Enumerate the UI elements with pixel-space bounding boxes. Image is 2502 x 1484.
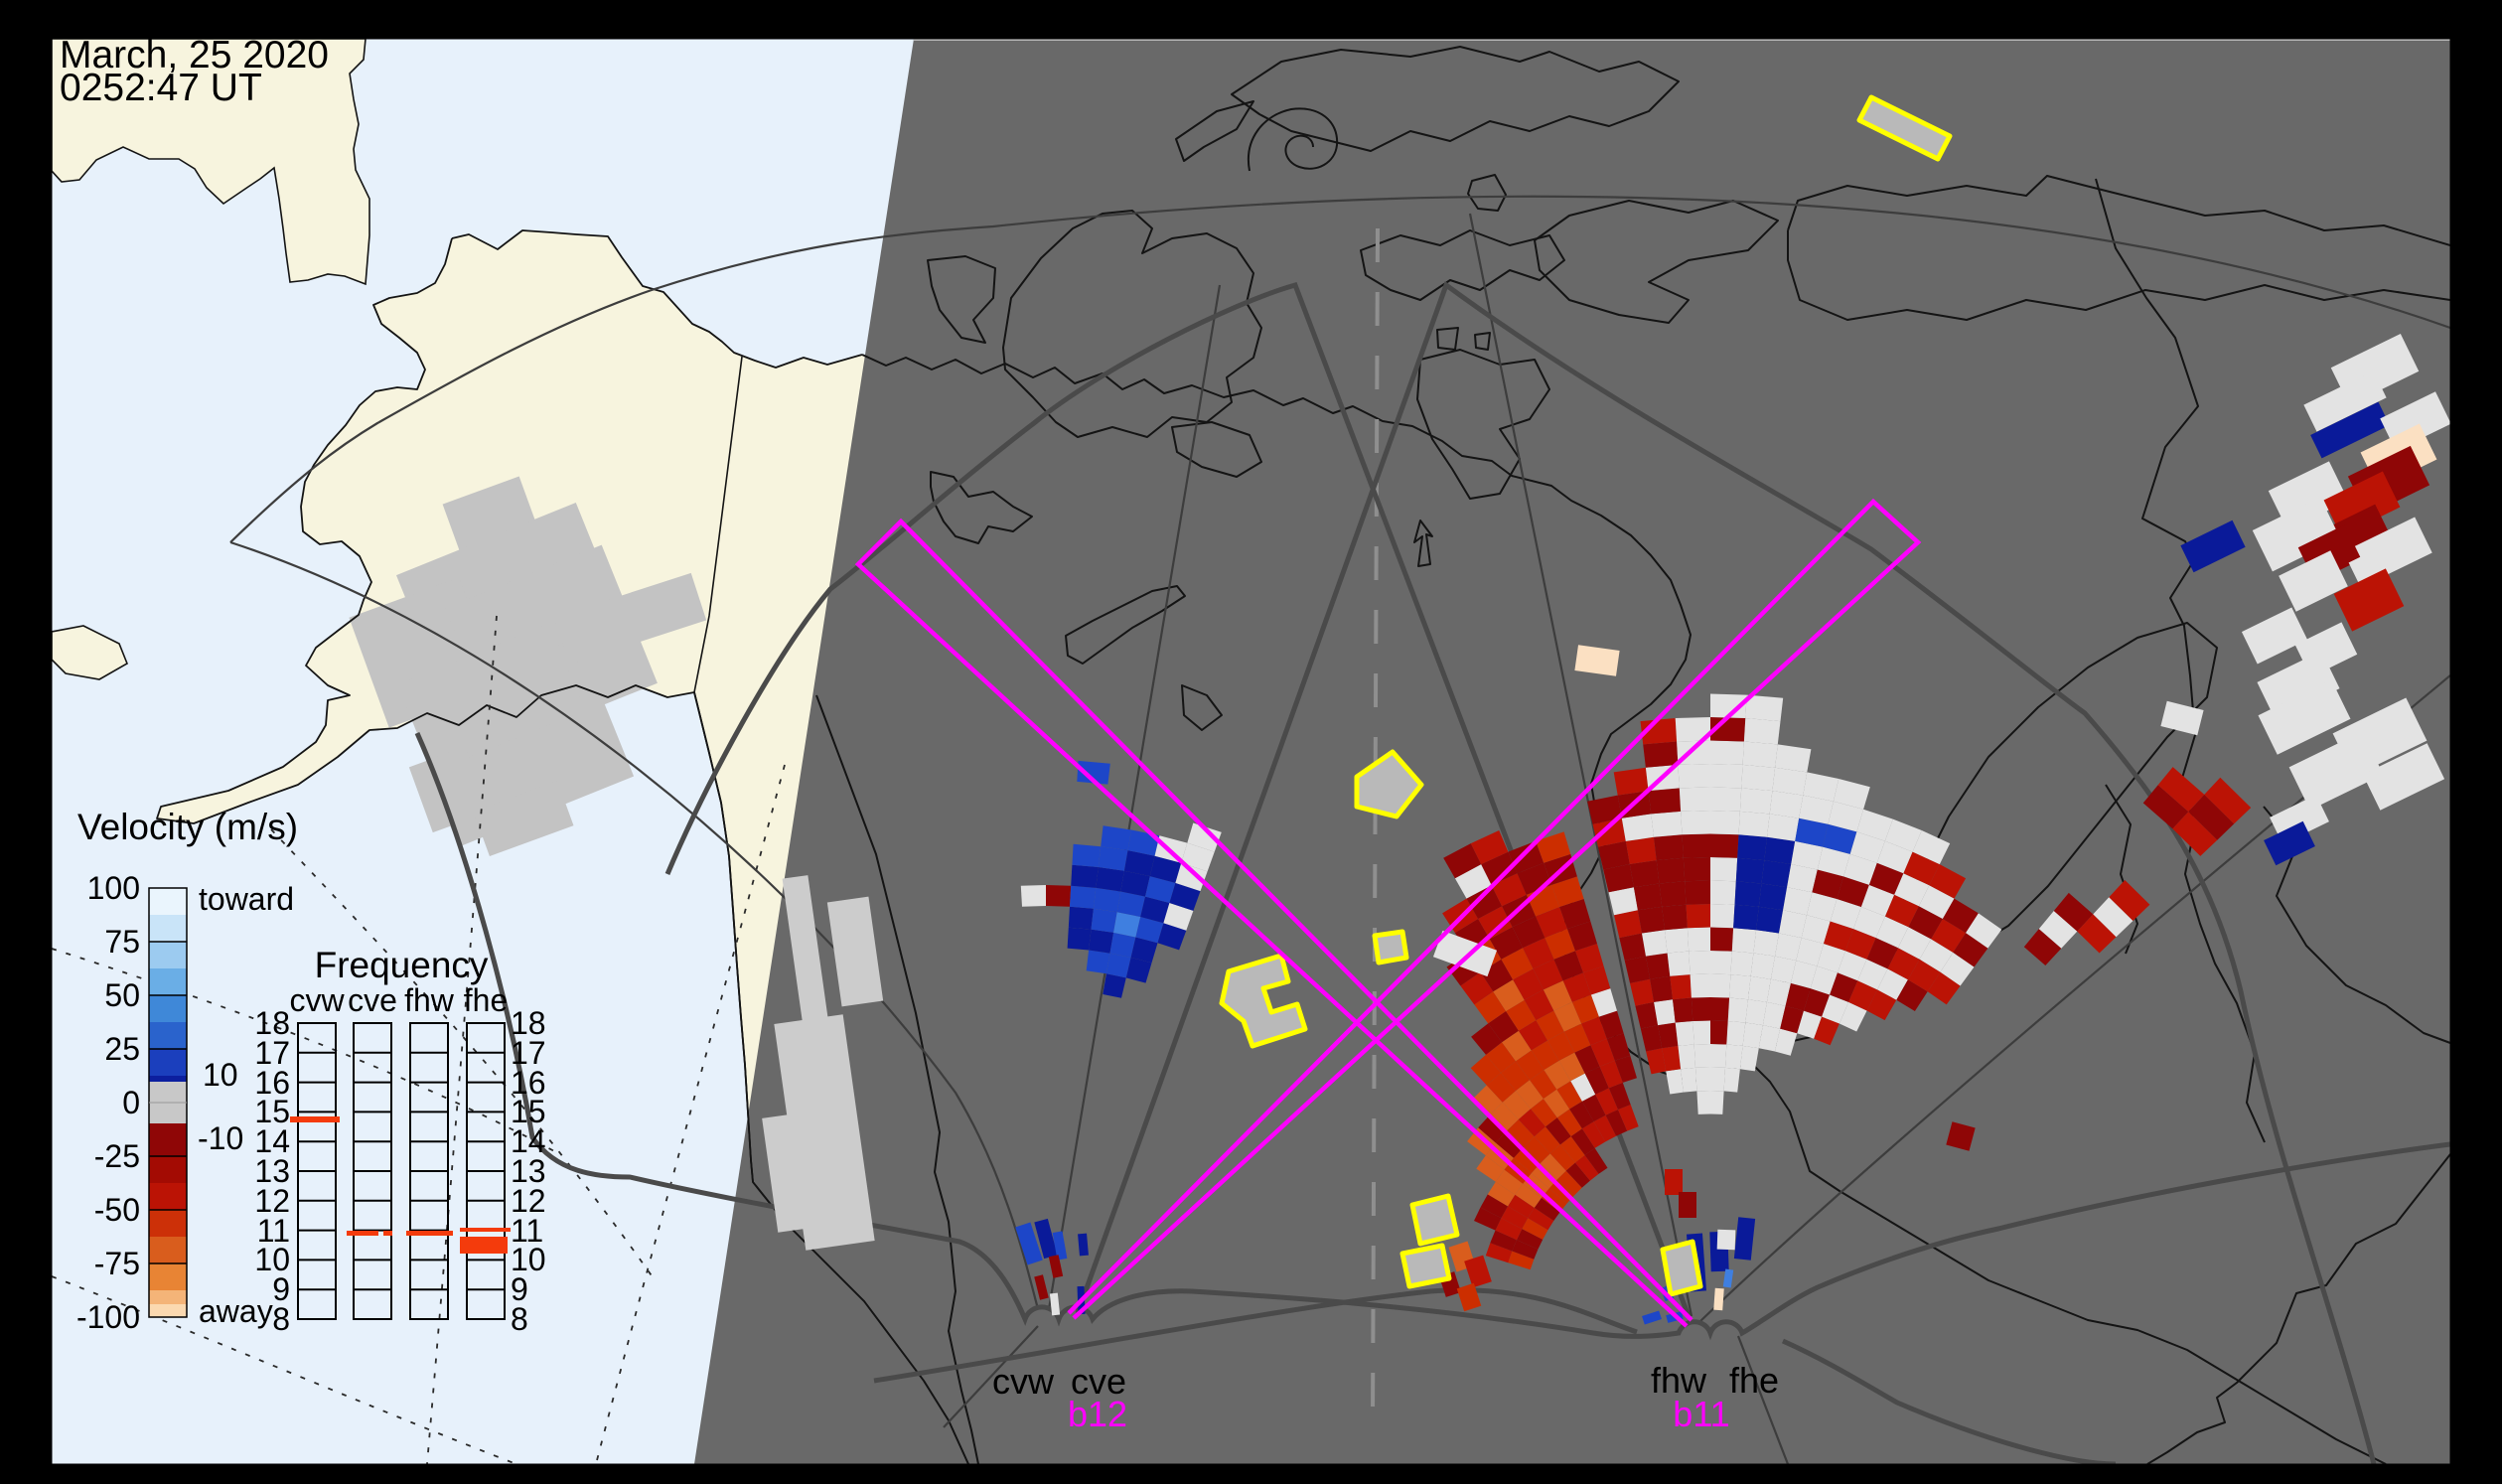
svg-text:-50: -50 [94,1192,140,1228]
svg-text:50: 50 [104,977,140,1013]
svg-text:0252:47 UT: 0252:47 UT [60,67,262,109]
svg-text:Frequency: Frequency [315,945,489,985]
svg-text:0: 0 [122,1085,140,1120]
svg-text:-10: -10 [198,1120,243,1156]
svg-text:b12: b12 [1068,1394,1127,1434]
svg-text:Velocity (m/s): Velocity (m/s) [77,807,298,847]
svg-text:cve: cve [348,982,397,1018]
svg-text:away: away [199,1293,273,1329]
svg-text:toward: toward [199,881,294,917]
svg-text:75: 75 [104,924,140,960]
svg-text:-75: -75 [94,1246,140,1281]
svg-text:b11: b11 [1673,1394,1729,1434]
svg-text:100: 100 [87,870,140,906]
svg-text:cvw: cvw [992,1361,1055,1402]
svg-text:10: 10 [203,1057,238,1093]
svg-text:-100: -100 [76,1299,140,1335]
svg-text:fhw: fhw [404,982,455,1018]
svg-text:-25: -25 [94,1138,140,1174]
svg-text:8: 8 [272,1301,290,1337]
svg-text:cvw: cvw [289,982,345,1018]
svg-text:25: 25 [104,1031,140,1067]
svg-text:fhe: fhe [464,982,508,1018]
svg-text:8: 8 [511,1301,528,1337]
svg-text:fhe: fhe [1729,1360,1779,1401]
